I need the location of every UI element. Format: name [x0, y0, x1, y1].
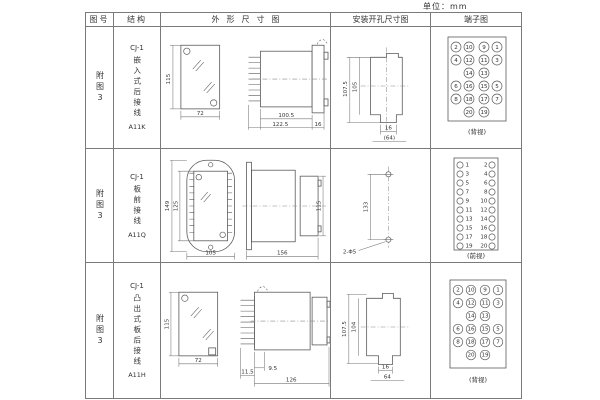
- dim-span: 64: [384, 375, 392, 381]
- structure-desc: 嵌入式后接线: [133, 56, 141, 119]
- front-view: [181, 45, 220, 109]
- structure-row1: CJ-1 嵌入式后接线 A11K: [114, 27, 161, 149]
- terminal-circle: [489, 188, 495, 194]
- terminal-number: 13: [481, 314, 489, 320]
- side-view: [241, 286, 330, 349]
- dim-front-width: 72: [197, 110, 204, 116]
- terminal-grid: 2109141211314136161558181772019: [451, 42, 502, 117]
- install-svg-row1: 107.5 105 16 (64): [331, 27, 430, 149]
- terminal-circle: [457, 242, 463, 248]
- install-drawing-row1: 107.5 105 16 (64): [331, 27, 431, 149]
- dim-outer-height: 107.5: [342, 321, 348, 337]
- terminal-number: 2: [484, 162, 488, 168]
- col-header-outline: 外形尺寸图: [161, 13, 331, 27]
- terminal-number: 17: [466, 234, 474, 240]
- terminal-drawing-row3: 2109141211314136161558181772019 (背视): [431, 263, 521, 398]
- col-header-install: 安装开孔尺寸图: [331, 13, 431, 27]
- terminal-circle: [489, 161, 495, 167]
- figure-no-text: 附图3: [96, 314, 104, 348]
- terminal-number: 5: [466, 180, 470, 186]
- dim-inner-height: 104: [352, 321, 358, 332]
- terminal-number: 4: [484, 171, 488, 177]
- terminal-circle: [489, 197, 495, 203]
- terminal-circle: [457, 188, 463, 194]
- terminal-circle: [489, 242, 495, 248]
- terminal-number: 11: [480, 57, 488, 63]
- outline-drawing-row3: 115 72 9.5 11.5 126: [161, 263, 331, 398]
- terminal-number: 15: [480, 83, 488, 89]
- dim-front-height: 115: [164, 318, 170, 329]
- unit-label: 单位：mm: [423, 1, 468, 12]
- dim-total-length: 122.5: [272, 121, 288, 127]
- terminal-number: 1: [495, 44, 499, 50]
- hole-layout: [383, 166, 393, 247]
- dim-front-inner-height: 125: [173, 200, 179, 211]
- terminal-circle: [489, 206, 495, 212]
- terminal-number: 16: [465, 83, 473, 89]
- terminal-number: 20: [467, 353, 475, 359]
- outline-svg-row2: 149 125 105 156 115: [161, 150, 330, 262]
- dimensions: 107.5 104 16 64: [342, 294, 404, 380]
- terminal-number: 2: [454, 44, 458, 50]
- terminal-number: 12: [480, 207, 487, 213]
- terminal-circle: [457, 215, 463, 221]
- dim-front-outer-height: 149: [165, 200, 171, 211]
- dimension-table: 图号 结构 外形尺寸图 安装开孔尺寸图 端子图 附图3 CJ-1 嵌入式后接线 …: [85, 12, 522, 399]
- terminal-number: 5: [496, 327, 500, 333]
- terminal-number: 12: [467, 301, 474, 307]
- side-view: [243, 162, 327, 249]
- model-label: CJ-1: [130, 173, 144, 181]
- terminal-circle: [489, 233, 495, 239]
- terminal-number: 15: [466, 225, 474, 231]
- outline-svg-row3: 115 72 9.5 11.5 126: [161, 264, 330, 397]
- terminal-number: 7: [495, 96, 499, 102]
- dim-front-height: 115: [166, 73, 172, 84]
- terminal-grid: 2109141211314136161558181772019: [453, 285, 503, 360]
- terminal-circle: [489, 215, 495, 221]
- terminal-number: 18: [480, 234, 488, 240]
- terminal-number: 19: [481, 353, 489, 359]
- dimensions: 115 72 100.5 122.5 16: [166, 45, 324, 130]
- terminal-number: 18: [465, 96, 473, 102]
- terminal-circle: [457, 206, 463, 212]
- terminal-number: 10: [480, 198, 488, 204]
- figure-no-row2: 附图3: [86, 149, 114, 263]
- side-view: [248, 39, 328, 112]
- model-label: CJ-1: [130, 44, 144, 52]
- terminal-number: 17: [481, 340, 489, 346]
- col-header-terminal: 端子图: [431, 13, 521, 27]
- structure-desc: 板前接线: [133, 185, 141, 227]
- terminal-circle: [457, 170, 463, 176]
- terminal-caption: (背视): [468, 127, 486, 136]
- terminal-number: 16: [480, 225, 488, 231]
- front-view: [187, 160, 235, 251]
- terminal-svg-row3: 2109141211314136161558181772019 (背视): [431, 264, 521, 397]
- figure-no-text: 附图3: [96, 189, 104, 223]
- terminal-number: 9: [483, 288, 487, 294]
- dim-hole-span: 133: [364, 201, 370, 212]
- holes-label: 2-Φ5: [343, 249, 357, 255]
- terminal-svg-row1: 2109141211314136161558181772019 (背视): [431, 27, 521, 149]
- model-code: A11H: [128, 371, 146, 379]
- terminal-caption: (背视): [469, 375, 487, 384]
- figure-no-row1: 附图3: [86, 27, 114, 149]
- model-code: A11Q: [128, 231, 146, 239]
- terminal-number: 6: [456, 327, 460, 333]
- outline-svg-row1: 115 72 100.5 122.5 16: [161, 27, 330, 149]
- dim-front-width: 105: [205, 250, 216, 256]
- terminal-number: 18: [467, 340, 475, 346]
- terminal-number: 11: [466, 207, 474, 213]
- terminal-circle: [457, 161, 463, 167]
- terminal-number: 3: [496, 301, 500, 307]
- terminal-number: 8: [484, 189, 488, 195]
- figure-no-text: 附图3: [96, 71, 104, 105]
- dimensions: 107.5 105 16 (64): [343, 57, 406, 141]
- terminal-number: 3: [466, 171, 470, 177]
- dim-body-length: 100.5: [278, 112, 294, 118]
- terminal-number: 17: [480, 96, 488, 102]
- dim-blade-depth: 11.5: [241, 370, 254, 376]
- terminal-drawing-row2: 1234567891011121314151617181920 (前视): [431, 149, 521, 263]
- terminal-circle: [457, 224, 463, 230]
- terminal-circle: [489, 224, 495, 230]
- terminal-number: 14: [467, 314, 475, 320]
- dim-notch-width: 16: [385, 125, 393, 131]
- terminal-number: 2: [456, 288, 460, 294]
- model-label: CJ-1: [130, 282, 144, 290]
- terminal-number: 9: [482, 44, 486, 50]
- terminal-circle: [457, 233, 463, 239]
- terminal-number: 3: [495, 57, 499, 63]
- terminal-number: 13: [480, 70, 488, 76]
- terminal-drawing-row1: 2109141211314136161558181772019 (背视): [431, 27, 521, 149]
- terminal-number: 9: [466, 198, 470, 204]
- model-code: A11K: [129, 123, 146, 131]
- dim-front-width: 72: [195, 358, 202, 364]
- dimensions: 149 125 105 156 115: [165, 160, 326, 259]
- terminal-number: 8: [454, 96, 458, 102]
- terminal-number: 12: [465, 57, 472, 63]
- figure-no-row3: 附图3: [86, 263, 114, 398]
- dim-notch-width: 16: [382, 365, 390, 371]
- dim-span: (64): [384, 135, 395, 141]
- terminal-number: 1: [466, 162, 470, 168]
- install-drawing-row2: 133 2-Φ5: [331, 149, 431, 263]
- terminal-caption: (前视): [467, 251, 485, 260]
- terminal-number: 4: [456, 301, 460, 307]
- front-view: [179, 292, 218, 356]
- terminal-number: 4: [454, 57, 458, 63]
- dimensions: 133 2-Φ5: [343, 174, 386, 255]
- terminal-number: 16: [467, 327, 475, 333]
- col-header-figure-no: 图号: [86, 13, 114, 27]
- terminal-number: 14: [465, 70, 473, 76]
- terminal-number: 19: [466, 243, 474, 249]
- install-svg-row3: 107.5 104 16 64: [331, 264, 430, 397]
- dim-outer-height: 107.5: [343, 80, 349, 96]
- terminal-number: 6: [454, 83, 458, 89]
- terminal-number: 8: [456, 340, 460, 346]
- terminal-circle: [457, 179, 463, 185]
- dim-body-length: 126: [286, 378, 297, 384]
- terminal-number: 20: [465, 109, 473, 115]
- dim-side-height: 115: [317, 200, 323, 211]
- cutout-outline: [361, 293, 411, 364]
- terminal-number: 15: [481, 327, 489, 333]
- terminal-number: 1: [496, 288, 500, 294]
- dim-side-length: 156: [277, 250, 288, 256]
- structure-row3: CJ-1 凸出式板后接线 A11H: [114, 263, 161, 398]
- terminal-number: 14: [480, 216, 488, 222]
- terminal-number: 7: [496, 340, 500, 346]
- install-drawing-row3: 107.5 104 16 64: [331, 263, 431, 398]
- dim-inner-height: 105: [353, 81, 359, 92]
- outline-drawing-row2: 149 125 105 156 115: [161, 149, 331, 263]
- terminal-number: 20: [480, 243, 488, 249]
- terminal-circle: [457, 197, 463, 203]
- terminal-number: 13: [466, 216, 474, 222]
- terminal-svg-row2: 1234567891011121314151617181920 (前视): [431, 150, 521, 262]
- terminal-number: 10: [465, 44, 473, 50]
- terminal-circle: [489, 179, 495, 185]
- terminal-number: 10: [467, 288, 475, 294]
- dim-stub-depth: 9.5: [268, 366, 277, 372]
- col-header-structure: 结构: [114, 13, 161, 27]
- terminal-number: 19: [480, 109, 488, 115]
- terminal-number: 7: [466, 189, 470, 195]
- structure-desc: 凸出式板后接线: [133, 294, 141, 368]
- terminal-circle: [489, 170, 495, 176]
- cutout-outline: [361, 47, 411, 130]
- terminal-number: 5: [495, 83, 499, 89]
- drawing-sheet: 单位：mm 图号 结构 外形尺寸图 安装开孔尺寸图 端子图 附图3 CJ-1 嵌…: [0, 0, 600, 400]
- terminal-number: 6: [484, 180, 488, 186]
- outline-drawing-row1: 115 72 100.5 122.5 16: [161, 27, 331, 149]
- install-svg-row2: 133 2-Φ5: [331, 150, 430, 262]
- dimensions: 115 72 9.5 11.5 126: [164, 292, 329, 386]
- structure-row2: CJ-1 板前接线 A11Q: [114, 149, 161, 263]
- terminal-grid: 1234567891011121314151617181920: [457, 161, 495, 249]
- dim-flange-depth: 16: [315, 121, 323, 127]
- terminal-number: 11: [481, 301, 489, 307]
